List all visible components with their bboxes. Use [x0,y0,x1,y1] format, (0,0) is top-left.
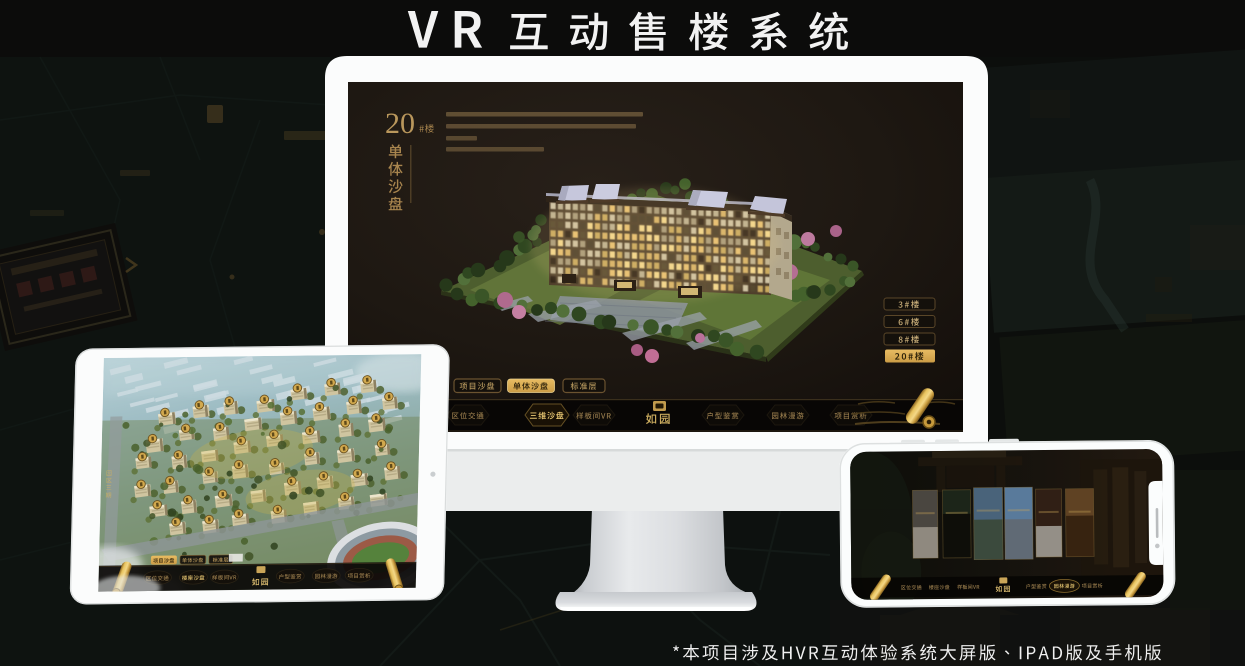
svg-text:20: 20 [385,107,415,140]
